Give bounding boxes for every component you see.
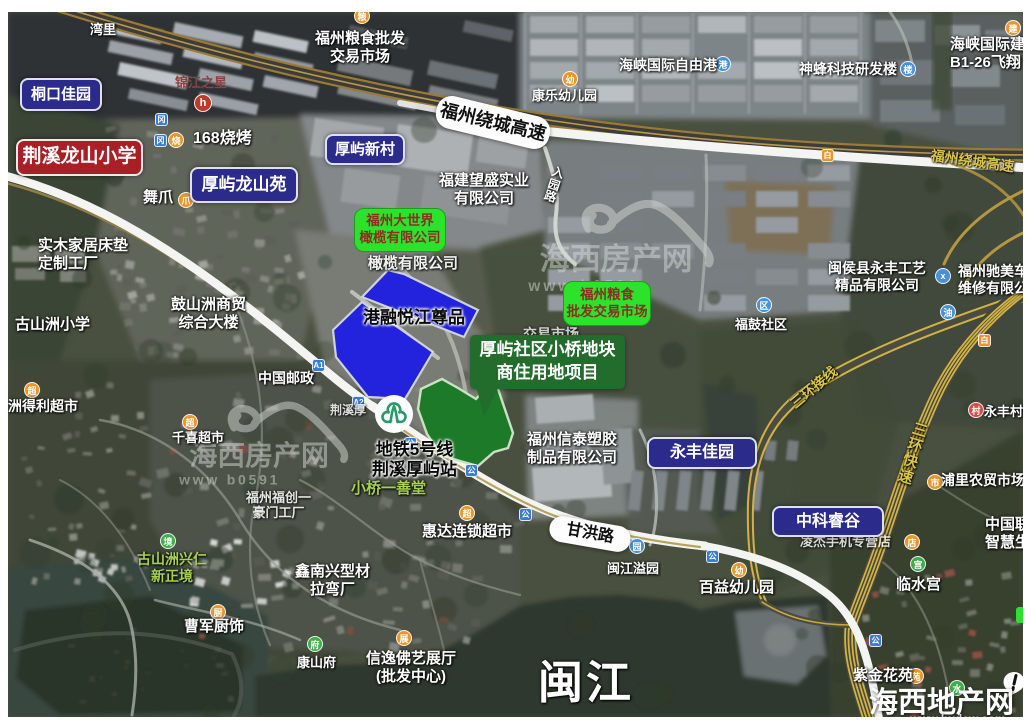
svg-text:www b0591: www b0591 xyxy=(178,471,280,487)
svg-text:海西房产网: 海西房产网 xyxy=(540,242,693,276)
